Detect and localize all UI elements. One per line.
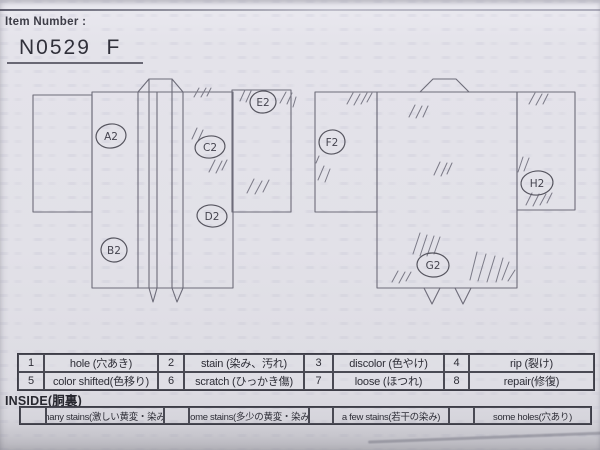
- legend-num-cell: 7: [304, 372, 333, 390]
- inside-option-cell: some holes(穴あり): [474, 407, 591, 424]
- legend-num-cell: 3: [304, 354, 333, 372]
- marker-g2: G2: [416, 252, 450, 278]
- legend-num-cell: 4: [444, 354, 469, 372]
- marker-c2-label: C2: [203, 142, 217, 154]
- inside-option-cell: a few stains(若干の染み): [333, 407, 449, 424]
- item-number-value: N0529 F: [19, 36, 121, 60]
- marker-d2-label: D2: [205, 211, 220, 223]
- item-number-underline: [7, 62, 143, 64]
- legend-num-cell: 5: [18, 372, 44, 390]
- inside-checkbox-cell: [309, 407, 333, 424]
- legend-label-cell: rip (裂け): [469, 354, 594, 372]
- legend-label-cell: stain (染み、汚れ): [184, 354, 304, 372]
- paper-edge-shadow: [368, 431, 600, 443]
- inside-checkbox-cell: [20, 407, 46, 424]
- inside-checkbox-cell: [449, 407, 474, 424]
- marker-a2-label: A2: [104, 131, 118, 143]
- kimono-back-outline: [315, 79, 575, 304]
- scanned-inspection-sheet: Item Number : N0529 F A2: [0, 0, 600, 450]
- marker-a2: A2: [94, 122, 127, 150]
- item-number-label: Item Number :: [5, 16, 86, 28]
- legend-label-cell: hole (穴あき): [44, 354, 158, 372]
- inside-checkbox-cell: [164, 407, 189, 424]
- damage-legend-table: 1 hole (穴あき) 2 stain (染み、汚れ) 3 discolor …: [17, 353, 595, 391]
- marker-f2: F2: [317, 128, 347, 156]
- inside-option-cell: many stains(激しい黄変・染み): [46, 407, 164, 424]
- legend-label-cell: loose (ほつれ): [333, 372, 444, 390]
- legend-label-cell: repair(修復): [469, 372, 594, 390]
- marker-h2: H2: [520, 169, 554, 196]
- marker-f2-label: F2: [326, 137, 339, 149]
- kimono-front-outline: [33, 79, 291, 302]
- marker-b2-label: B2: [107, 245, 121, 257]
- marker-b2: B2: [100, 237, 128, 264]
- marker-g2-label: G2: [426, 260, 441, 272]
- inside-condition-table: many stains(激しい黄変・染み) some stains(多少の黄変・…: [19, 406, 592, 425]
- legend-label-cell: color shifted(色移り): [44, 372, 158, 390]
- marker-d2: D2: [196, 204, 228, 229]
- back-damage-hatching: [316, 93, 552, 283]
- front-damage-hatching: [192, 88, 296, 194]
- legend-num-cell: 6: [158, 372, 184, 390]
- marker-c2: C2: [194, 134, 226, 159]
- top-divider-line: [0, 9, 600, 11]
- legend-num-cell: 8: [444, 372, 469, 390]
- marker-e2-label: E2: [256, 97, 269, 109]
- legend-num-cell: 2: [158, 354, 184, 372]
- legend-label-cell: discolor (色やけ): [333, 354, 444, 372]
- legend-num-cell: 1: [18, 354, 44, 372]
- legend-label-cell: scratch (ひっかき傷): [184, 372, 304, 390]
- marker-e2: E2: [249, 90, 277, 115]
- inside-option-cell: some stains(多少の黄変・染み): [189, 407, 309, 424]
- marker-h2-label: H2: [530, 178, 545, 190]
